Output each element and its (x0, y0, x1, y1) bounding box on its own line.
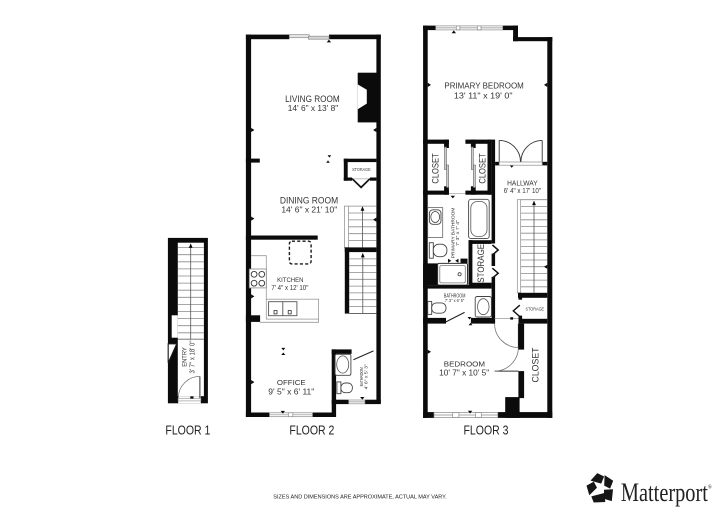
svg-text:CLOSET: CLOSET (431, 153, 442, 183)
svg-text:FLOOR 1: FLOOR 1 (165, 423, 210, 438)
svg-text:STORAGE: STORAGE (526, 306, 545, 311)
svg-text:10' 7" x 10' 5": 10' 7" x 10' 5" (439, 368, 489, 377)
svg-text:7' 4" x 12' 10": 7' 4" x 12' 10" (271, 284, 308, 292)
svg-text:3' 7" x 18' 0": 3' 7" x 18' 0" (190, 340, 197, 373)
svg-text:7' 3" x 6' 5": 7' 3" x 6' 5" (445, 298, 465, 303)
svg-text:CLOSET: CLOSET (531, 347, 542, 382)
svg-text:14' 6" x 21' 10": 14' 6" x 21' 10" (281, 205, 337, 214)
svg-text:CLOSET: CLOSET (477, 153, 488, 183)
svg-text:ENTRY: ENTRY (182, 347, 189, 367)
svg-text:FLOOR 3: FLOOR 3 (464, 423, 509, 438)
svg-text:BEDROOM: BEDROOM (444, 359, 485, 368)
svg-text:9' 5" x 6' 11": 9' 5" x 6' 11" (268, 386, 314, 396)
svg-text:DINING ROOM: DINING ROOM (280, 196, 338, 206)
svg-text:STORAGE: STORAGE (476, 244, 487, 283)
svg-text:13' 11" x 19' 0": 13' 11" x 19' 0" (454, 91, 513, 101)
svg-text:7' 3" x 7' 4": 7' 3" x 7' 4" (455, 219, 460, 246)
svg-text:4' 6" x 5' 3": 4' 6" x 5' 3" (364, 364, 369, 390)
svg-text:Matterport: Matterport (621, 478, 709, 507)
svg-text:PRIMARY BEDROOM: PRIMARY BEDROOM (444, 82, 523, 91)
svg-text:FLOOR 2: FLOOR 2 (289, 423, 334, 438)
svg-text:®: ® (708, 484, 712, 491)
svg-text:SIZES AND DIMENSIONS ARE APPRO: SIZES AND DIMENSIONS ARE APPROXIMATE, AC… (273, 494, 446, 500)
svg-text:14' 6" x 13' 8": 14' 6" x 13' 8" (288, 103, 339, 113)
svg-text:6' 4" x 17' 10": 6' 4" x 17' 10" (504, 186, 542, 195)
svg-text:STORAGE: STORAGE (352, 167, 371, 172)
